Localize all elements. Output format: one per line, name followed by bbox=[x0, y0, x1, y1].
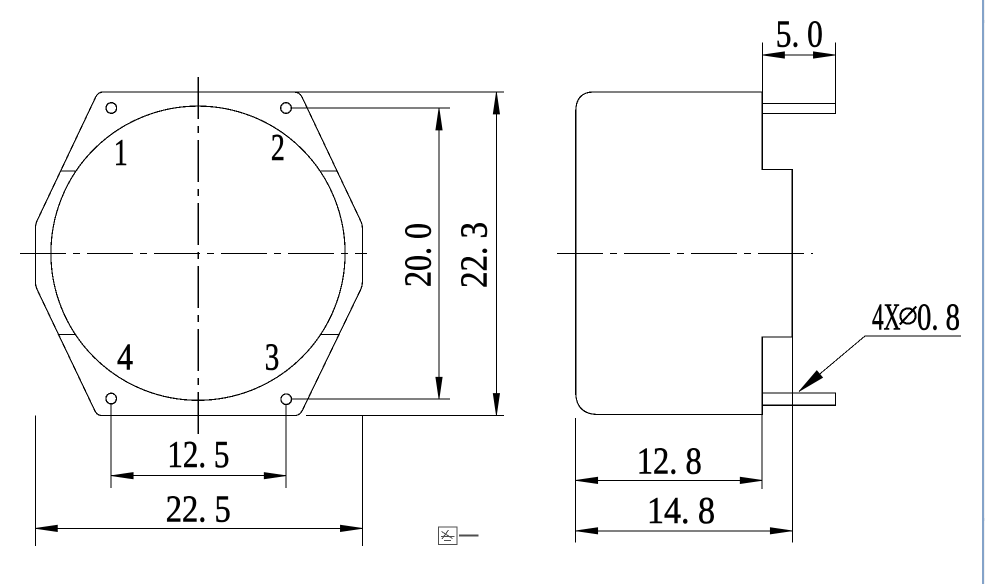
svg-text:3: 3 bbox=[265, 337, 280, 379]
svg-text:0. 8: 0. 8 bbox=[917, 297, 960, 339]
svg-text:22. 3: 22. 3 bbox=[453, 222, 495, 288]
svg-text:12. 8: 12. 8 bbox=[637, 441, 702, 483]
svg-text:12. 5: 12. 5 bbox=[167, 434, 229, 476]
svg-text:5. 0: 5. 0 bbox=[776, 14, 823, 56]
svg-text:20. 0: 20. 0 bbox=[398, 223, 440, 287]
svg-text:4X: 4X bbox=[872, 297, 901, 339]
svg-text:1: 1 bbox=[114, 132, 128, 174]
svg-text:14. 8: 14. 8 bbox=[647, 490, 715, 532]
svg-text:22. 5: 22. 5 bbox=[166, 489, 231, 531]
svg-text:2: 2 bbox=[271, 127, 285, 169]
svg-text:4: 4 bbox=[117, 337, 133, 379]
